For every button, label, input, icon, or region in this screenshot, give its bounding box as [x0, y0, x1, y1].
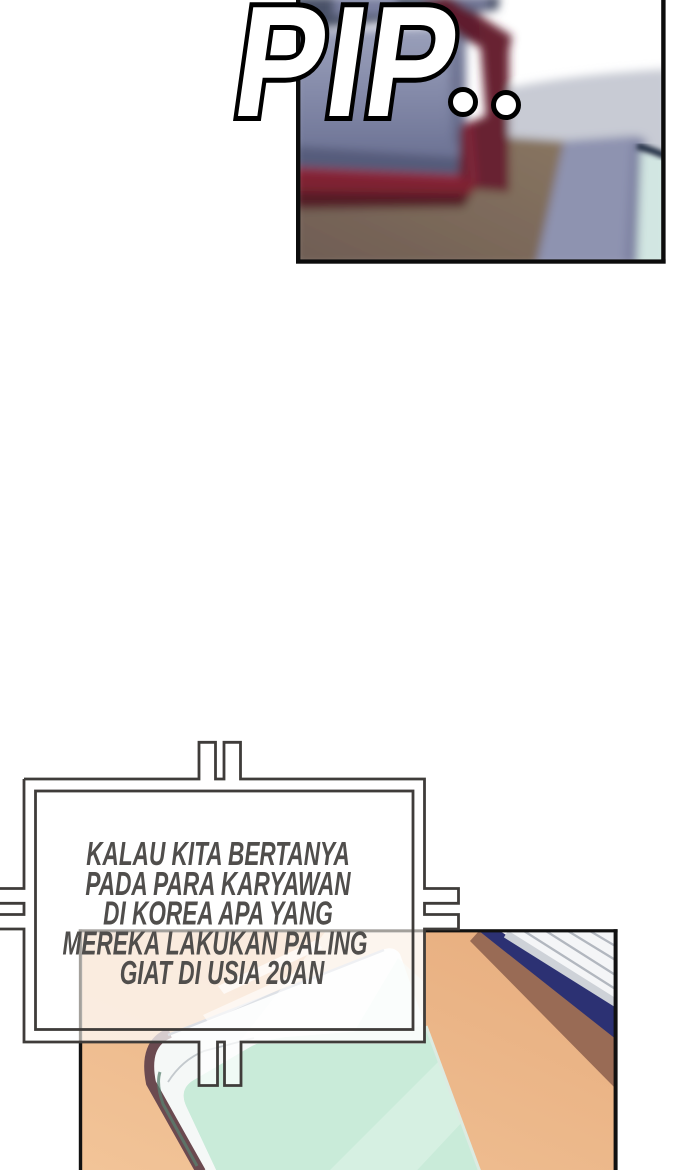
svg-text:GIAT DI USIA 20AN: GIAT DI USIA 20AN [120, 954, 325, 991]
svg-text:PIP: PIP [224, 0, 470, 150]
